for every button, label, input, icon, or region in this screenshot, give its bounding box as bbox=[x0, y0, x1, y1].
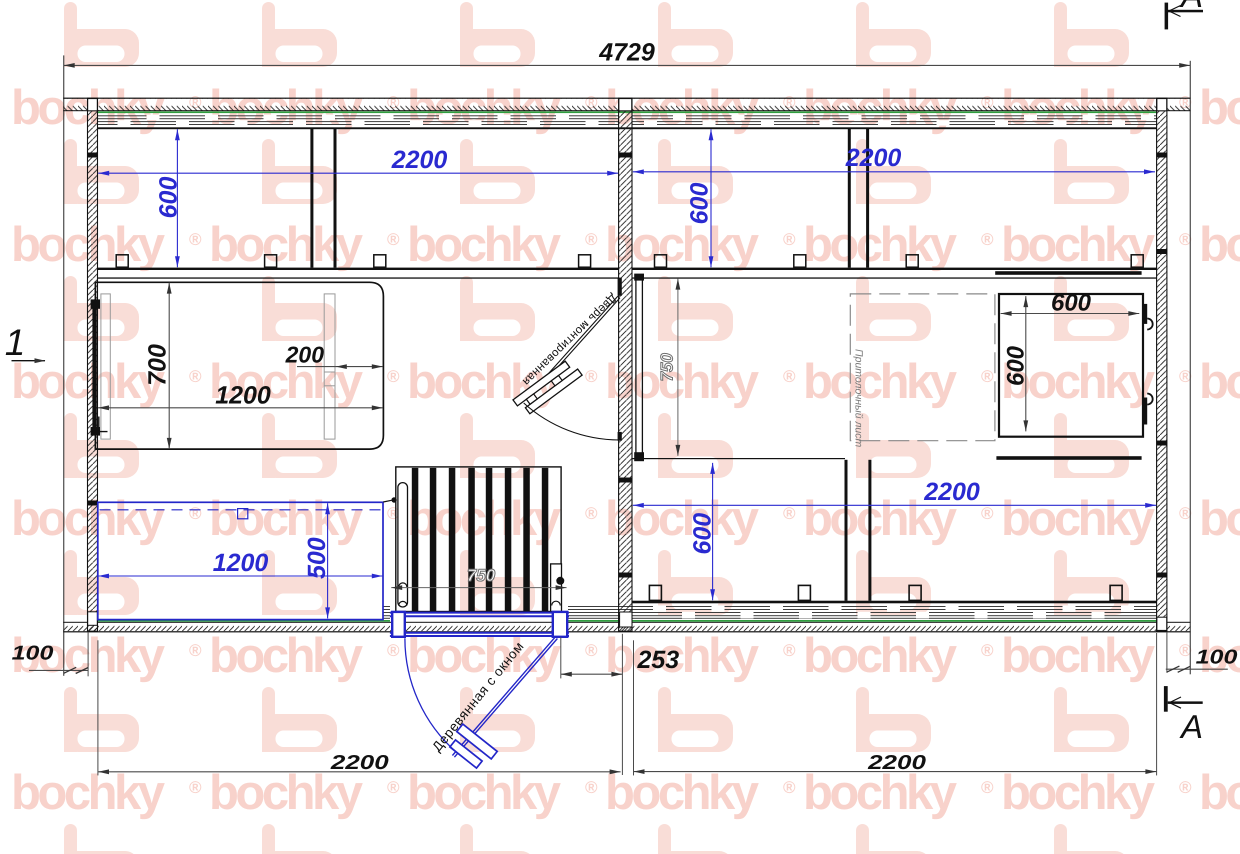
svg-text:2200: 2200 bbox=[330, 752, 389, 774]
svg-text:253: 253 bbox=[636, 646, 679, 674]
svg-text:750: 750 bbox=[658, 353, 677, 382]
svg-text:600: 600 bbox=[155, 177, 183, 219]
svg-text:700: 700 bbox=[144, 344, 172, 386]
svg-text:1: 1 bbox=[5, 322, 26, 363]
svg-text:2200: 2200 bbox=[391, 146, 448, 174]
svg-text:100: 100 bbox=[12, 643, 54, 665]
svg-text:500: 500 bbox=[303, 537, 331, 579]
svg-text:2200: 2200 bbox=[923, 478, 980, 506]
svg-text:100: 100 bbox=[1196, 647, 1238, 669]
svg-text:200: 200 bbox=[285, 341, 325, 367]
svg-text:Притолочный лист: Притолочный лист bbox=[853, 349, 865, 448]
svg-text:600: 600 bbox=[686, 183, 714, 225]
svg-text:А: А bbox=[1179, 0, 1203, 14]
svg-text:600: 600 bbox=[1051, 290, 1092, 317]
svg-text:600: 600 bbox=[688, 513, 716, 555]
svg-text:1200: 1200 bbox=[213, 549, 269, 577]
svg-text:А: А bbox=[1179, 708, 1203, 745]
svg-text:750: 750 bbox=[467, 566, 496, 585]
svg-text:600: 600 bbox=[1002, 345, 1029, 386]
svg-text:4729: 4729 bbox=[598, 39, 655, 67]
svg-text:2200: 2200 bbox=[845, 144, 902, 172]
svg-text:1200: 1200 bbox=[215, 382, 271, 410]
svg-text:2200: 2200 bbox=[867, 752, 926, 774]
